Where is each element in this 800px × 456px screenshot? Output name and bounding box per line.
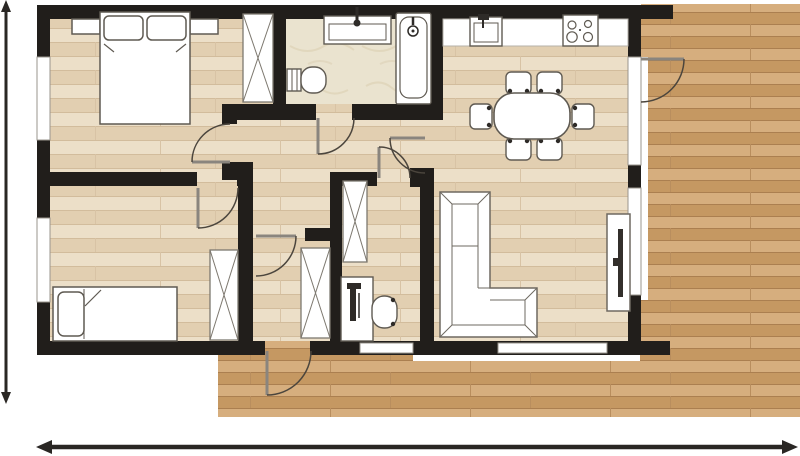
window-right-top xyxy=(628,57,641,165)
dimension-line-vertical xyxy=(1,0,11,404)
pillow xyxy=(147,16,186,40)
wall-bathroom-bottom-a xyxy=(237,104,316,120)
hallway xyxy=(301,248,330,338)
window-left-top xyxy=(37,57,50,140)
bathtub xyxy=(396,13,431,104)
storage-closet xyxy=(343,181,367,262)
entry-walkway-deck xyxy=(218,355,800,417)
wall-entry-stub xyxy=(305,228,330,241)
desk-chair xyxy=(372,296,397,328)
wall-bathroom-bottom-b xyxy=(352,104,443,120)
floor-plan xyxy=(0,0,800,456)
window-bottom-living xyxy=(498,343,607,353)
wall-junction-block xyxy=(222,162,237,180)
dimension-line-horizontal xyxy=(36,440,798,454)
arrowhead-right-icon xyxy=(782,440,798,454)
tv xyxy=(618,229,623,297)
nightstand xyxy=(190,19,218,34)
wall-hall-left xyxy=(237,162,253,186)
tv-unit xyxy=(607,214,630,311)
entry-door-threshold xyxy=(265,341,310,357)
wardrobe xyxy=(301,248,330,338)
pillow xyxy=(58,292,84,336)
sink-tap-icon xyxy=(478,14,489,20)
desk-lamp-icon xyxy=(350,289,356,321)
single-bed xyxy=(53,287,177,341)
arrowhead-down-icon xyxy=(1,392,11,404)
dining-chair xyxy=(506,72,531,94)
dining-chair xyxy=(506,138,531,160)
wardrobe xyxy=(243,14,273,102)
arrowhead-up-icon xyxy=(1,0,11,12)
window-bottom-study xyxy=(360,343,413,353)
pillow xyxy=(104,16,143,40)
wall-bathroom-right xyxy=(430,19,443,104)
kitchen-sink xyxy=(470,14,502,46)
window-sill-strip xyxy=(413,355,640,361)
nightstand xyxy=(72,19,100,34)
arrowhead-left-icon xyxy=(36,440,52,454)
wall-living-west xyxy=(420,187,434,341)
desk xyxy=(341,277,373,341)
cooktop xyxy=(563,15,598,46)
dining-chair xyxy=(537,138,562,160)
dining-chair xyxy=(572,104,594,129)
wall-master-door-stub xyxy=(222,104,237,124)
wardrobe xyxy=(210,250,238,340)
dining-chair xyxy=(537,72,562,94)
wall-bathroom-left xyxy=(273,19,286,104)
wall-bedrooms-divider xyxy=(50,172,197,186)
window-left-bottom xyxy=(37,218,50,302)
floor-plan-page xyxy=(0,0,800,456)
wall-bottom-left xyxy=(37,341,265,355)
wall-study-left xyxy=(330,186,342,341)
balcony-sill-strip xyxy=(641,57,648,300)
wall-bedroom2-right xyxy=(238,186,253,355)
toilet xyxy=(287,67,326,93)
dining-chair xyxy=(470,104,492,129)
dining-table xyxy=(494,93,570,139)
